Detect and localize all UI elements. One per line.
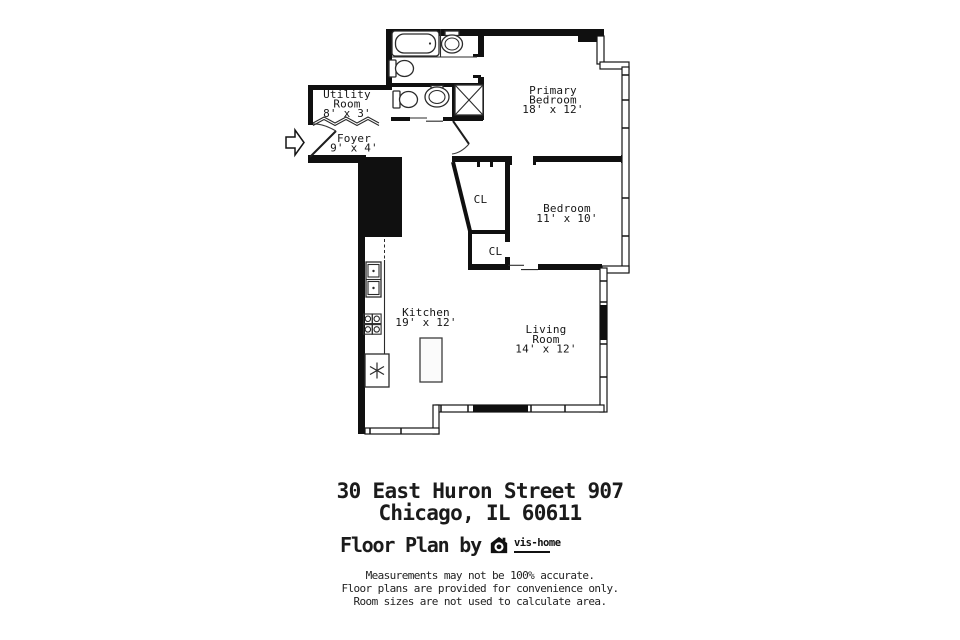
wall-hall-a bbox=[391, 117, 410, 121]
foyer-dims: 9' x 4' bbox=[330, 142, 378, 155]
window-right-wall bbox=[622, 67, 629, 272]
entry-door-swing bbox=[313, 124, 336, 131]
column-living-bottom bbox=[473, 405, 528, 412]
accordion-door-utility2 bbox=[313, 120, 379, 126]
wall-closet-angled bbox=[453, 162, 470, 231]
wall-closet2-right-b bbox=[505, 257, 510, 269]
vis-home-logo: vis-home bbox=[488, 535, 561, 555]
floor-plan-page: Utility Room 8' x 3' Foyer 9' x 4' Prima… bbox=[0, 0, 960, 640]
wall-closet2-right-a bbox=[505, 233, 510, 242]
utility-room-dims: 8' x 3' bbox=[323, 107, 371, 120]
bathtub-drain bbox=[429, 42, 431, 44]
wall-primary-left-a bbox=[478, 36, 484, 57]
wall-closet2-bottom bbox=[468, 264, 510, 270]
house-camera-icon bbox=[488, 535, 510, 555]
disclaimer-line-3: Room sizes are not used to calculate are… bbox=[0, 595, 960, 608]
stove bbox=[364, 314, 382, 334]
sink-drain-1 bbox=[372, 270, 374, 272]
toilet-1-bowl bbox=[396, 61, 414, 77]
kitchen-dims: 19' x 12' bbox=[395, 316, 456, 329]
closet-door-tab-a bbox=[477, 162, 480, 167]
kitchen-island bbox=[420, 338, 442, 382]
entry-arrow bbox=[286, 130, 304, 155]
credit-text: Floor Plan by bbox=[340, 533, 481, 557]
closet-upper-label: CL bbox=[474, 193, 488, 206]
primary-bedroom-dims: 18' x 12' bbox=[522, 103, 583, 116]
address-line-2: Chicago, IL 60611 bbox=[0, 501, 960, 525]
wall-kitchen-left bbox=[358, 157, 365, 434]
credit-row: Floor Plan by vis-home bbox=[340, 533, 561, 557]
bedroom-door-jamb-b bbox=[533, 156, 536, 165]
column-living-right bbox=[600, 305, 607, 340]
bathroom-2-fixtures bbox=[393, 85, 483, 115]
wall-utility-left bbox=[308, 85, 313, 125]
wall-foyer-bottom bbox=[308, 155, 366, 163]
primary-door-swing bbox=[452, 144, 469, 154]
logo-tagline-bar bbox=[514, 551, 550, 554]
disclaimer-line-1: Measurements may not be 100% accurate. bbox=[0, 569, 960, 582]
bathroom-1-fixtures bbox=[389, 29, 477, 77]
toilet-2-bowl bbox=[400, 92, 418, 108]
wall-bedroom-bottom bbox=[538, 264, 602, 270]
wall-closet-divider bbox=[468, 230, 510, 234]
primary-door-leaf bbox=[453, 121, 469, 144]
bath-door-jamb-bottom bbox=[473, 75, 481, 78]
window-kitchen-bottom bbox=[365, 428, 439, 434]
address-line-1: 30 East Huron Street 907 bbox=[0, 479, 960, 503]
window-primary-stub bbox=[597, 36, 604, 64]
closet-lower-label: CL bbox=[489, 245, 503, 258]
wall-closet2-left bbox=[468, 230, 472, 269]
logo-text-stack: vis-home bbox=[514, 537, 561, 553]
wall-bedrooms-divider-a bbox=[452, 156, 512, 162]
bedroom-dims: 11' x 10' bbox=[536, 212, 597, 225]
closet-door-tab-b bbox=[490, 162, 493, 167]
sink-drain-2 bbox=[372, 287, 374, 289]
disclaimer-line-2: Floor plans are provided for convenience… bbox=[0, 582, 960, 595]
logo-name: vis-home bbox=[514, 537, 561, 549]
wall-closet-right bbox=[505, 160, 510, 233]
wall-bedrooms-divider-b bbox=[536, 156, 628, 162]
living-room-dims: 14' x 12' bbox=[515, 343, 576, 356]
wall-hall-b bbox=[443, 117, 452, 121]
